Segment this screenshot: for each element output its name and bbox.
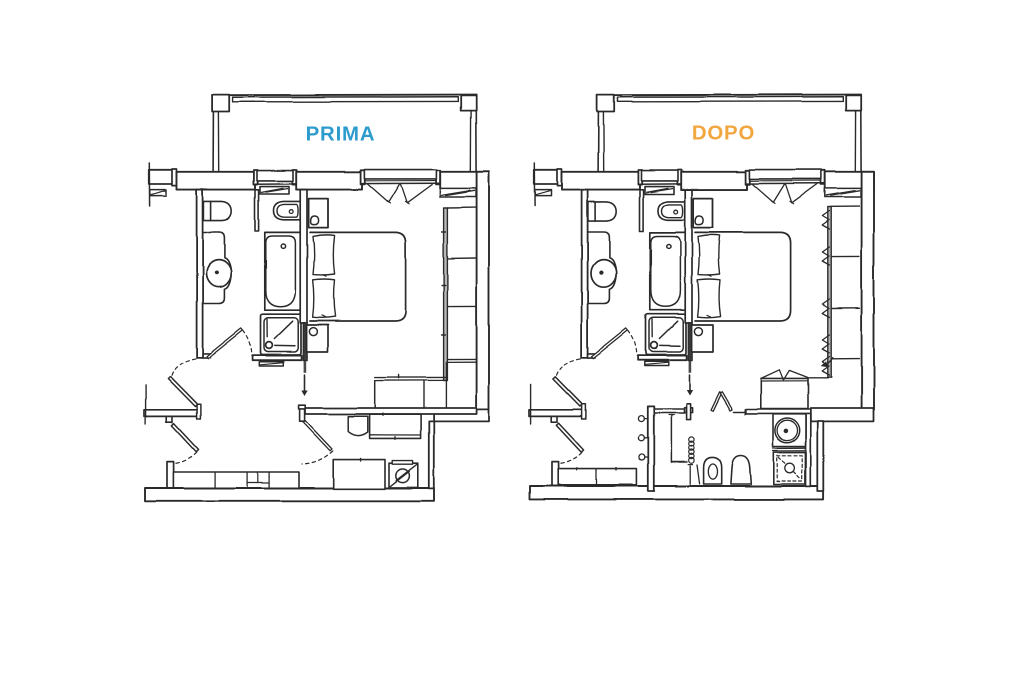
svg-text:DOPO: DOPO [692, 123, 755, 145]
svg-text:PRIMA: PRIMA [306, 124, 376, 146]
